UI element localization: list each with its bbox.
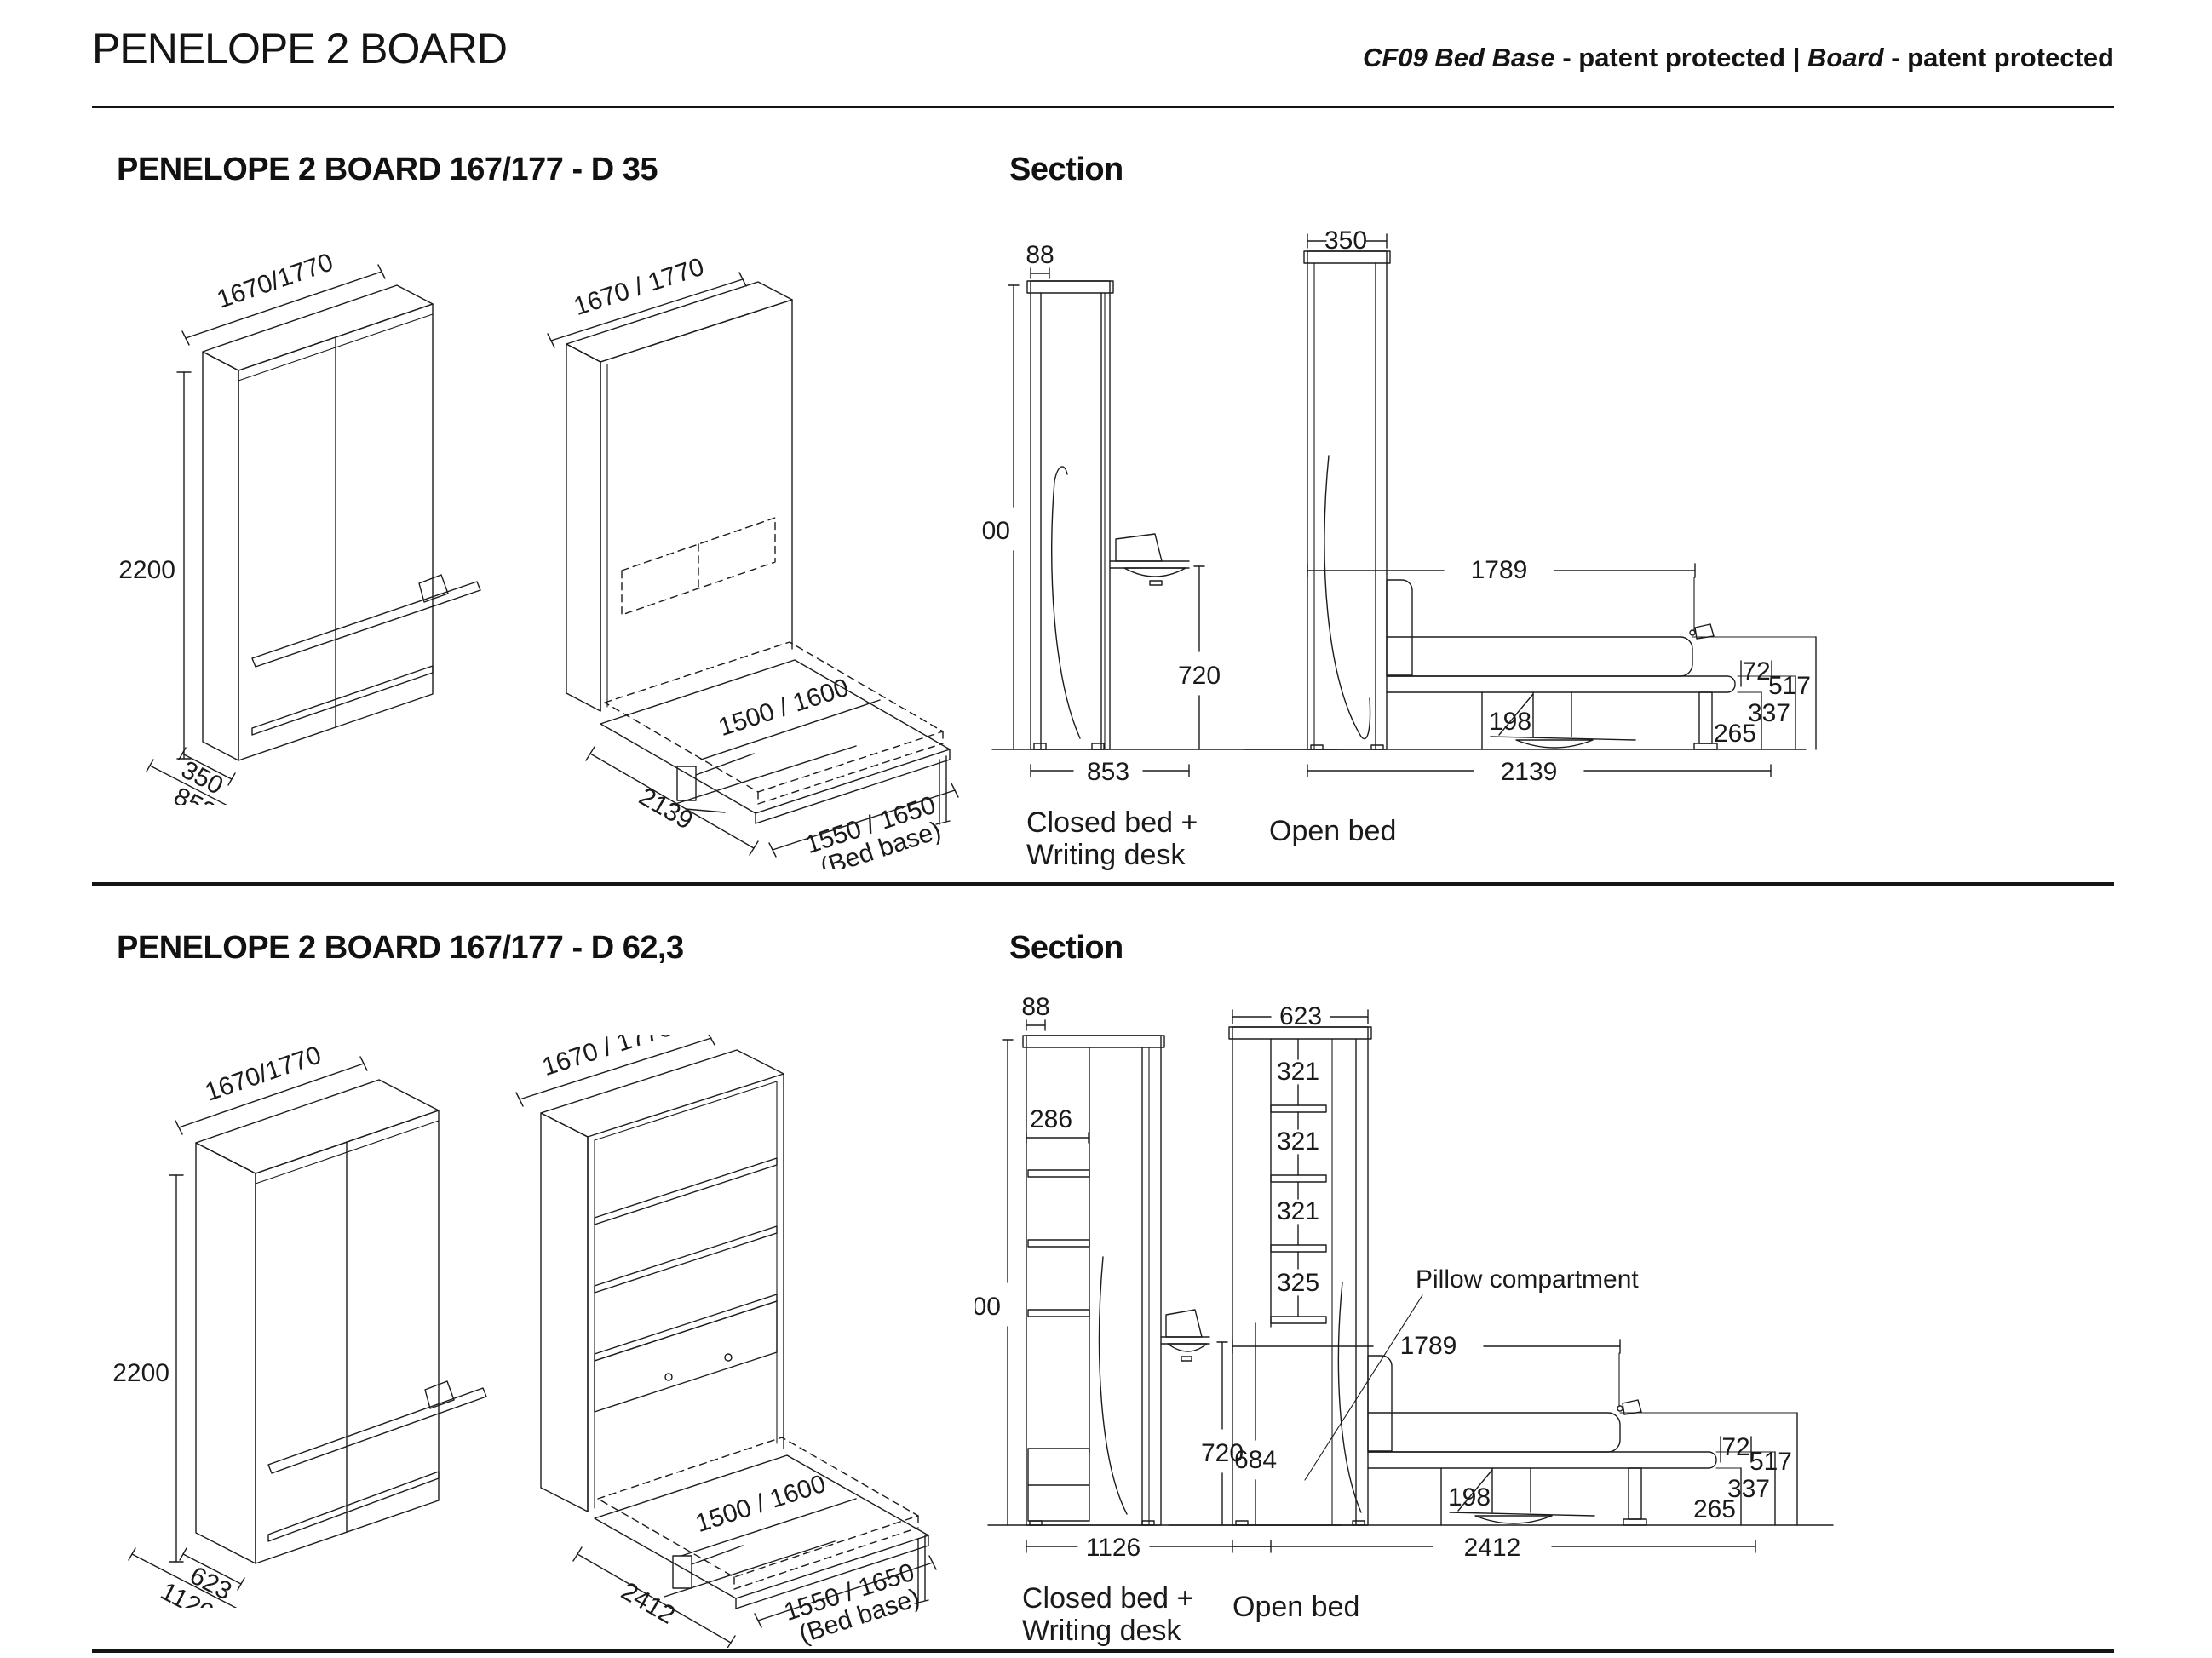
dim-mattress-height: 517: [1749, 1448, 1792, 1476]
section2-title: PENELOPE 2 BOARD 167/177 - D 62,3: [117, 930, 684, 967]
dim-height: 2200: [980, 517, 1010, 545]
dim-cabinet-depth: 623: [1279, 1002, 1322, 1030]
cabinet-side-view: [1304, 251, 1390, 749]
dim-total-depth: 853: [1087, 758, 1129, 786]
dimension-lines: [1307, 234, 1816, 777]
dim-cabinet-depth: 350: [1324, 227, 1367, 255]
cabinet-outline: [203, 285, 433, 760]
header-rule: [92, 106, 2114, 108]
open-bed: [1368, 1356, 1716, 1525]
drawing-iso-open-d62: 1670 / 1770 1500 / 1600 2412 1550 / 1650…: [468, 1035, 1022, 1648]
dim-board-depth: 88: [1021, 993, 1049, 1021]
dim-width: 1670/1770: [213, 251, 336, 314]
dim-mattress-length: 1789: [1400, 1332, 1457, 1360]
dimension-lines: [129, 1057, 367, 1608]
dim-clearance: 198: [1489, 708, 1531, 736]
dimension-lines: [548, 273, 958, 857]
shelves: [595, 1158, 777, 1412]
caption-open: Open bed: [1232, 1591, 1359, 1623]
dim-height: 2200: [112, 1359, 169, 1387]
dim-shelf3: 321: [1277, 1197, 1319, 1225]
dim-mattress-length: 1789: [1471, 556, 1528, 584]
section1-label: Section: [1009, 152, 1123, 188]
dim-board-depth: 88: [1026, 241, 1054, 269]
dim-height: 2200: [975, 1293, 1001, 1321]
cabinet-side-view: [1027, 281, 1113, 749]
dim-frame-thickness: 72: [1721, 1433, 1749, 1461]
dim-frame-thickness: 72: [1742, 657, 1770, 686]
open-bed: [1387, 580, 1735, 749]
dim-length: 2139: [635, 783, 698, 835]
drawing-iso-open-d35: 1670 / 1770 1500 / 1600 2139 1550 / 1650…: [473, 255, 992, 869]
dim-frame-top: 337: [1727, 1475, 1770, 1503]
dim-desk-height: 720: [1178, 662, 1221, 690]
caption-closed-line1: Closed bed +: [1026, 806, 1198, 839]
dim-width: 1670 / 1770: [571, 255, 708, 321]
dim-shelf1: 321: [1277, 1058, 1319, 1086]
dim-width: 1670 / 1770: [539, 1035, 676, 1081]
section1-title: PENELOPE 2 BOARD 167/177 - D 35: [117, 152, 658, 188]
cabinet-outline: [566, 282, 792, 711]
page-title: PENELOPE 2 BOARD: [92, 24, 507, 73]
dim-frame-top: 337: [1748, 699, 1790, 727]
patent-model: CF09 Bed Base: [1363, 43, 1555, 72]
section2-label: Section: [1009, 930, 1123, 967]
dim-length: 2412: [617, 1577, 680, 1630]
dim-height: 2200: [118, 556, 175, 584]
dim-compartment: 684: [1234, 1446, 1277, 1474]
dimension-lines: [516, 1035, 936, 1648]
pillow-compartment-label: Pillow compartment: [1416, 1265, 1639, 1294]
drawing-iso-closed-d35: 1670/1770 2200 350 853: [102, 251, 503, 805]
drawing-section-open-d62: 623 321 321 321 325 684 Pillow compartme…: [1152, 976, 2054, 1657]
dim-width: 1670/1770: [201, 1046, 325, 1107]
cabinet-outline: [541, 1050, 784, 1512]
patent-text-2: - patent protected: [1884, 43, 2114, 72]
dim-total-length: 2139: [1501, 758, 1558, 786]
patent-board: Board: [1807, 43, 1884, 72]
patent-note: CF09 Bed Base - patent protected | Board…: [1363, 43, 2114, 73]
desk-shelf: [268, 1381, 486, 1541]
dim-total-length: 2412: [1464, 1534, 1521, 1562]
dim-shelf-depth: 286: [1030, 1105, 1072, 1133]
caption-closed-line2: Writing desk: [1026, 839, 1186, 871]
drawing-section-open-d35: 350 1789 198 72 517 265 337 2139 Open be…: [1227, 200, 1823, 881]
caption-open: Open bed: [1269, 815, 1396, 847]
bottom-rule: [92, 1649, 2114, 1653]
dimension-lines: [1008, 268, 1204, 777]
section-divider: [92, 882, 2114, 886]
drawing-iso-closed-d62: 1670/1770 2200 623 1126: [98, 1046, 507, 1608]
cabinet-outline: [196, 1080, 439, 1563]
patent-text-1: - patent protected |: [1555, 43, 1807, 72]
dim-shelf4: 325: [1277, 1269, 1319, 1297]
dim-total-depth: 1126: [1086, 1534, 1141, 1562]
dim-shelf2: 321: [1277, 1127, 1319, 1156]
writing-desk: [1110, 534, 1189, 585]
dim-clearance: 198: [1448, 1483, 1491, 1512]
dim-mattress-height: 517: [1768, 672, 1811, 700]
desk-shelf: [252, 575, 480, 735]
